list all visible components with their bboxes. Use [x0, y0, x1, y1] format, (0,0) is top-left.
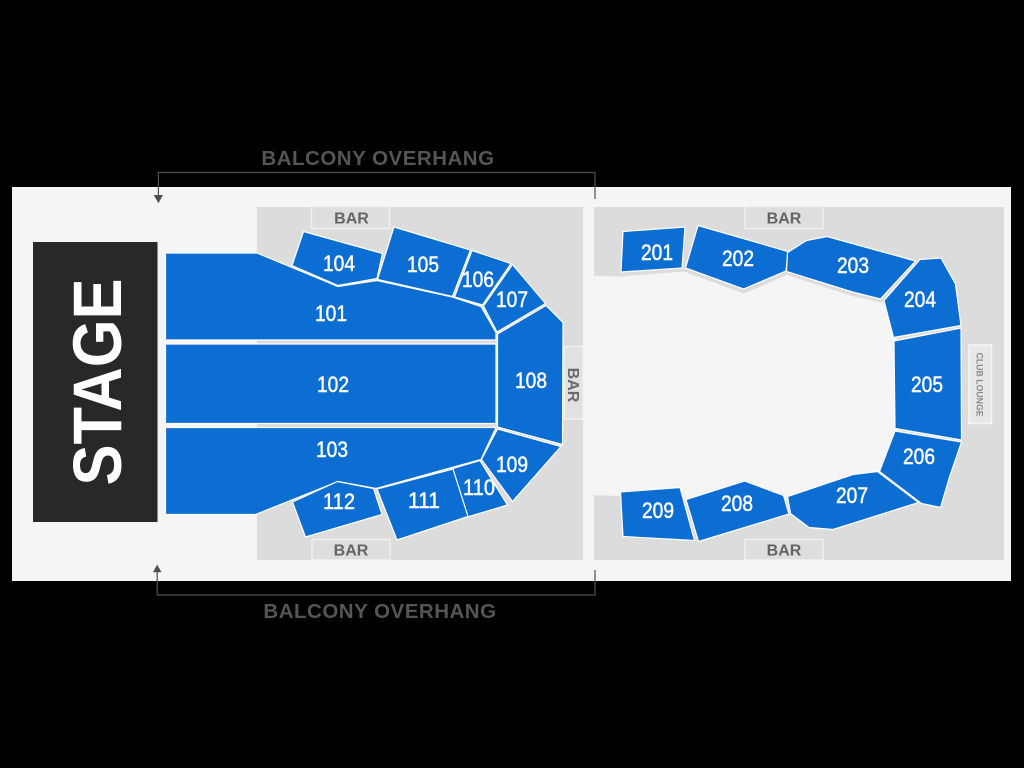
svg-text:107: 107: [496, 287, 528, 312]
svg-text:207: 207: [836, 483, 868, 508]
svg-text:105: 105: [407, 252, 439, 277]
svg-text:112: 112: [323, 489, 355, 514]
svg-text:101: 101: [315, 301, 347, 326]
svg-text:BALCONY OVERHANG: BALCONY OVERHANG: [261, 147, 494, 170]
svg-text:111: 111: [408, 488, 440, 513]
svg-text:BAR: BAR: [334, 211, 369, 228]
svg-text:206: 206: [903, 444, 935, 469]
svg-text:BAR: BAR: [334, 543, 369, 560]
svg-text:201: 201: [641, 240, 673, 265]
svg-text:BAR: BAR: [767, 543, 802, 560]
svg-text:108: 108: [515, 368, 547, 393]
svg-text:203: 203: [837, 253, 869, 278]
svg-text:208: 208: [721, 491, 753, 516]
svg-text:102: 102: [317, 372, 349, 397]
svg-text:BAR: BAR: [767, 211, 802, 228]
svg-text:204: 204: [904, 287, 936, 312]
svg-text:109: 109: [496, 452, 528, 477]
svg-text:202: 202: [722, 246, 754, 271]
svg-text:BAR: BAR: [564, 368, 581, 403]
svg-text:205: 205: [911, 372, 943, 397]
svg-text:STAGE: STAGE: [59, 279, 136, 486]
svg-text:BALCONY OVERHANG: BALCONY OVERHANG: [263, 600, 496, 623]
svg-text:104: 104: [323, 251, 355, 276]
svg-text:110: 110: [463, 475, 495, 500]
svg-text:106: 106: [462, 267, 494, 292]
svg-text:209: 209: [642, 498, 674, 523]
svg-text:103: 103: [316, 437, 348, 462]
svg-text:CLUB LOUNGE: CLUB LOUNGE: [974, 353, 985, 417]
